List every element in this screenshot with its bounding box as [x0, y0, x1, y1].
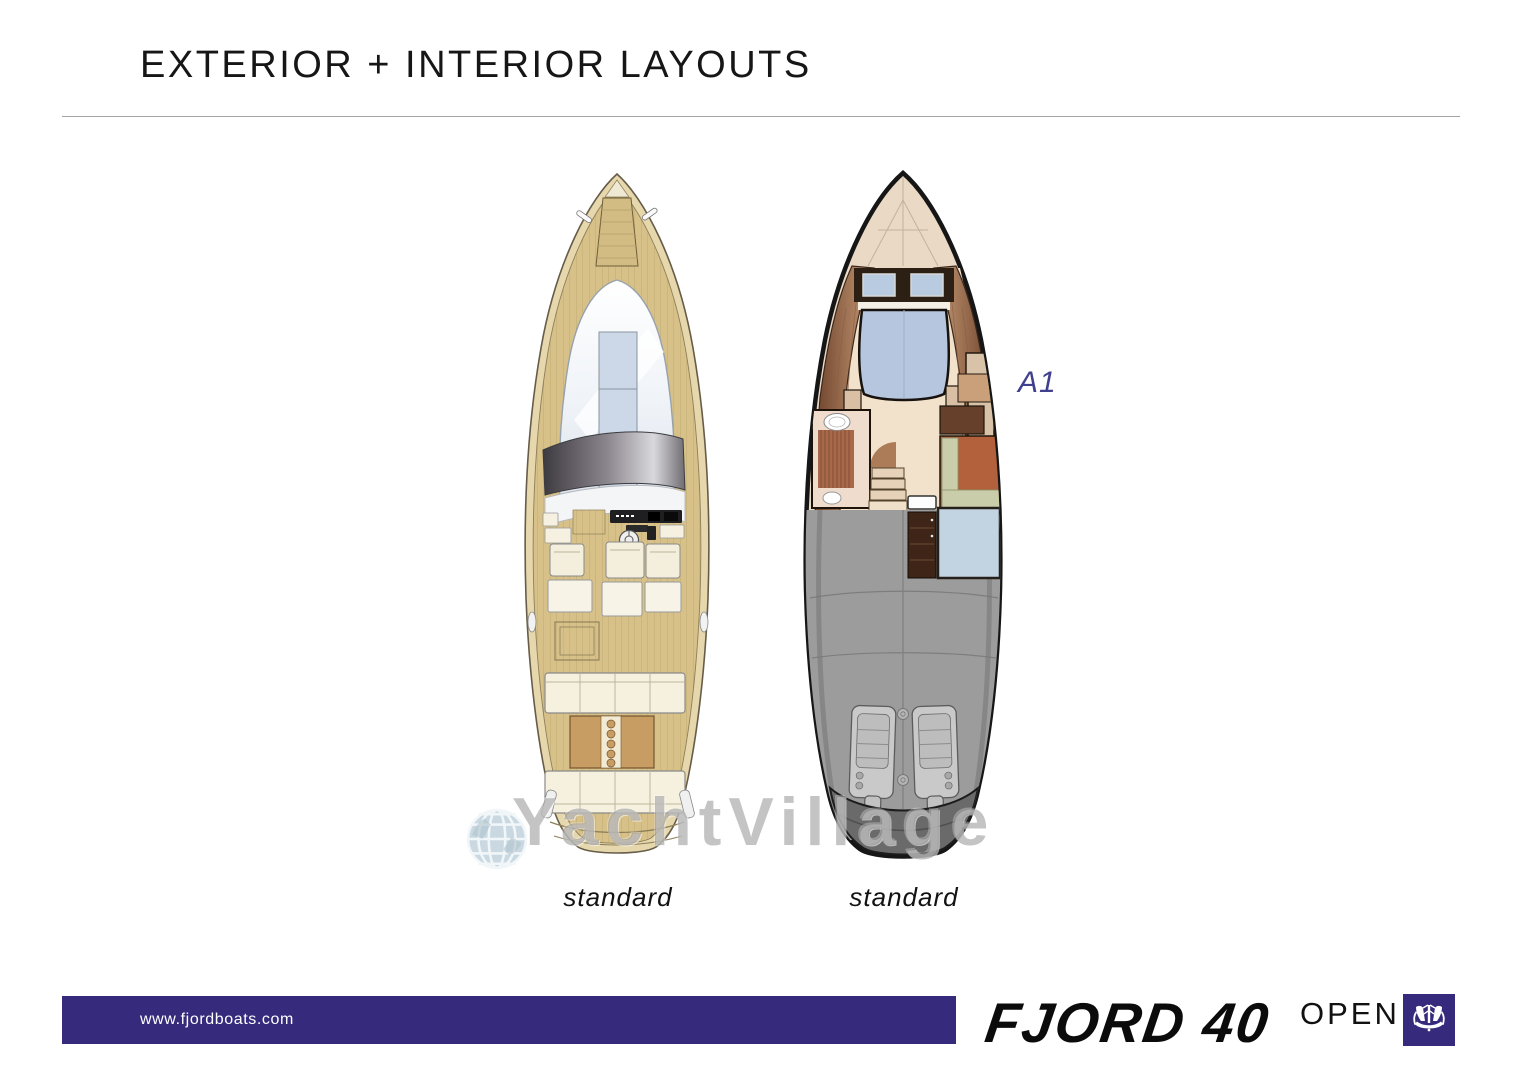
brand-name: FJORD 40 — [981, 990, 1274, 1055]
interior-layout-plan-figure — [790, 168, 1018, 880]
website-link[interactable]: www.fjordboats.com — [140, 1011, 294, 1029]
page-title: EXTERIOR + INTERIOR LAYOUTS — [140, 44, 812, 87]
caption-interior: standard — [790, 882, 1018, 913]
viking-ship-icon — [1403, 994, 1455, 1046]
brand-suffix: OPEN — [1300, 996, 1400, 1032]
caption-exterior: standard — [498, 882, 738, 913]
brochure-page: EXTERIOR + INTERIOR LAYOUTS — [0, 0, 1521, 1077]
header-divider — [62, 116, 1460, 117]
exterior-deck-plan-figure — [498, 170, 738, 870]
aft-berth — [938, 508, 1000, 578]
galley-unit — [908, 512, 936, 578]
footer-bar: www.fjordboats.com — [62, 996, 956, 1044]
variant-label: A1 — [1018, 366, 1057, 400]
